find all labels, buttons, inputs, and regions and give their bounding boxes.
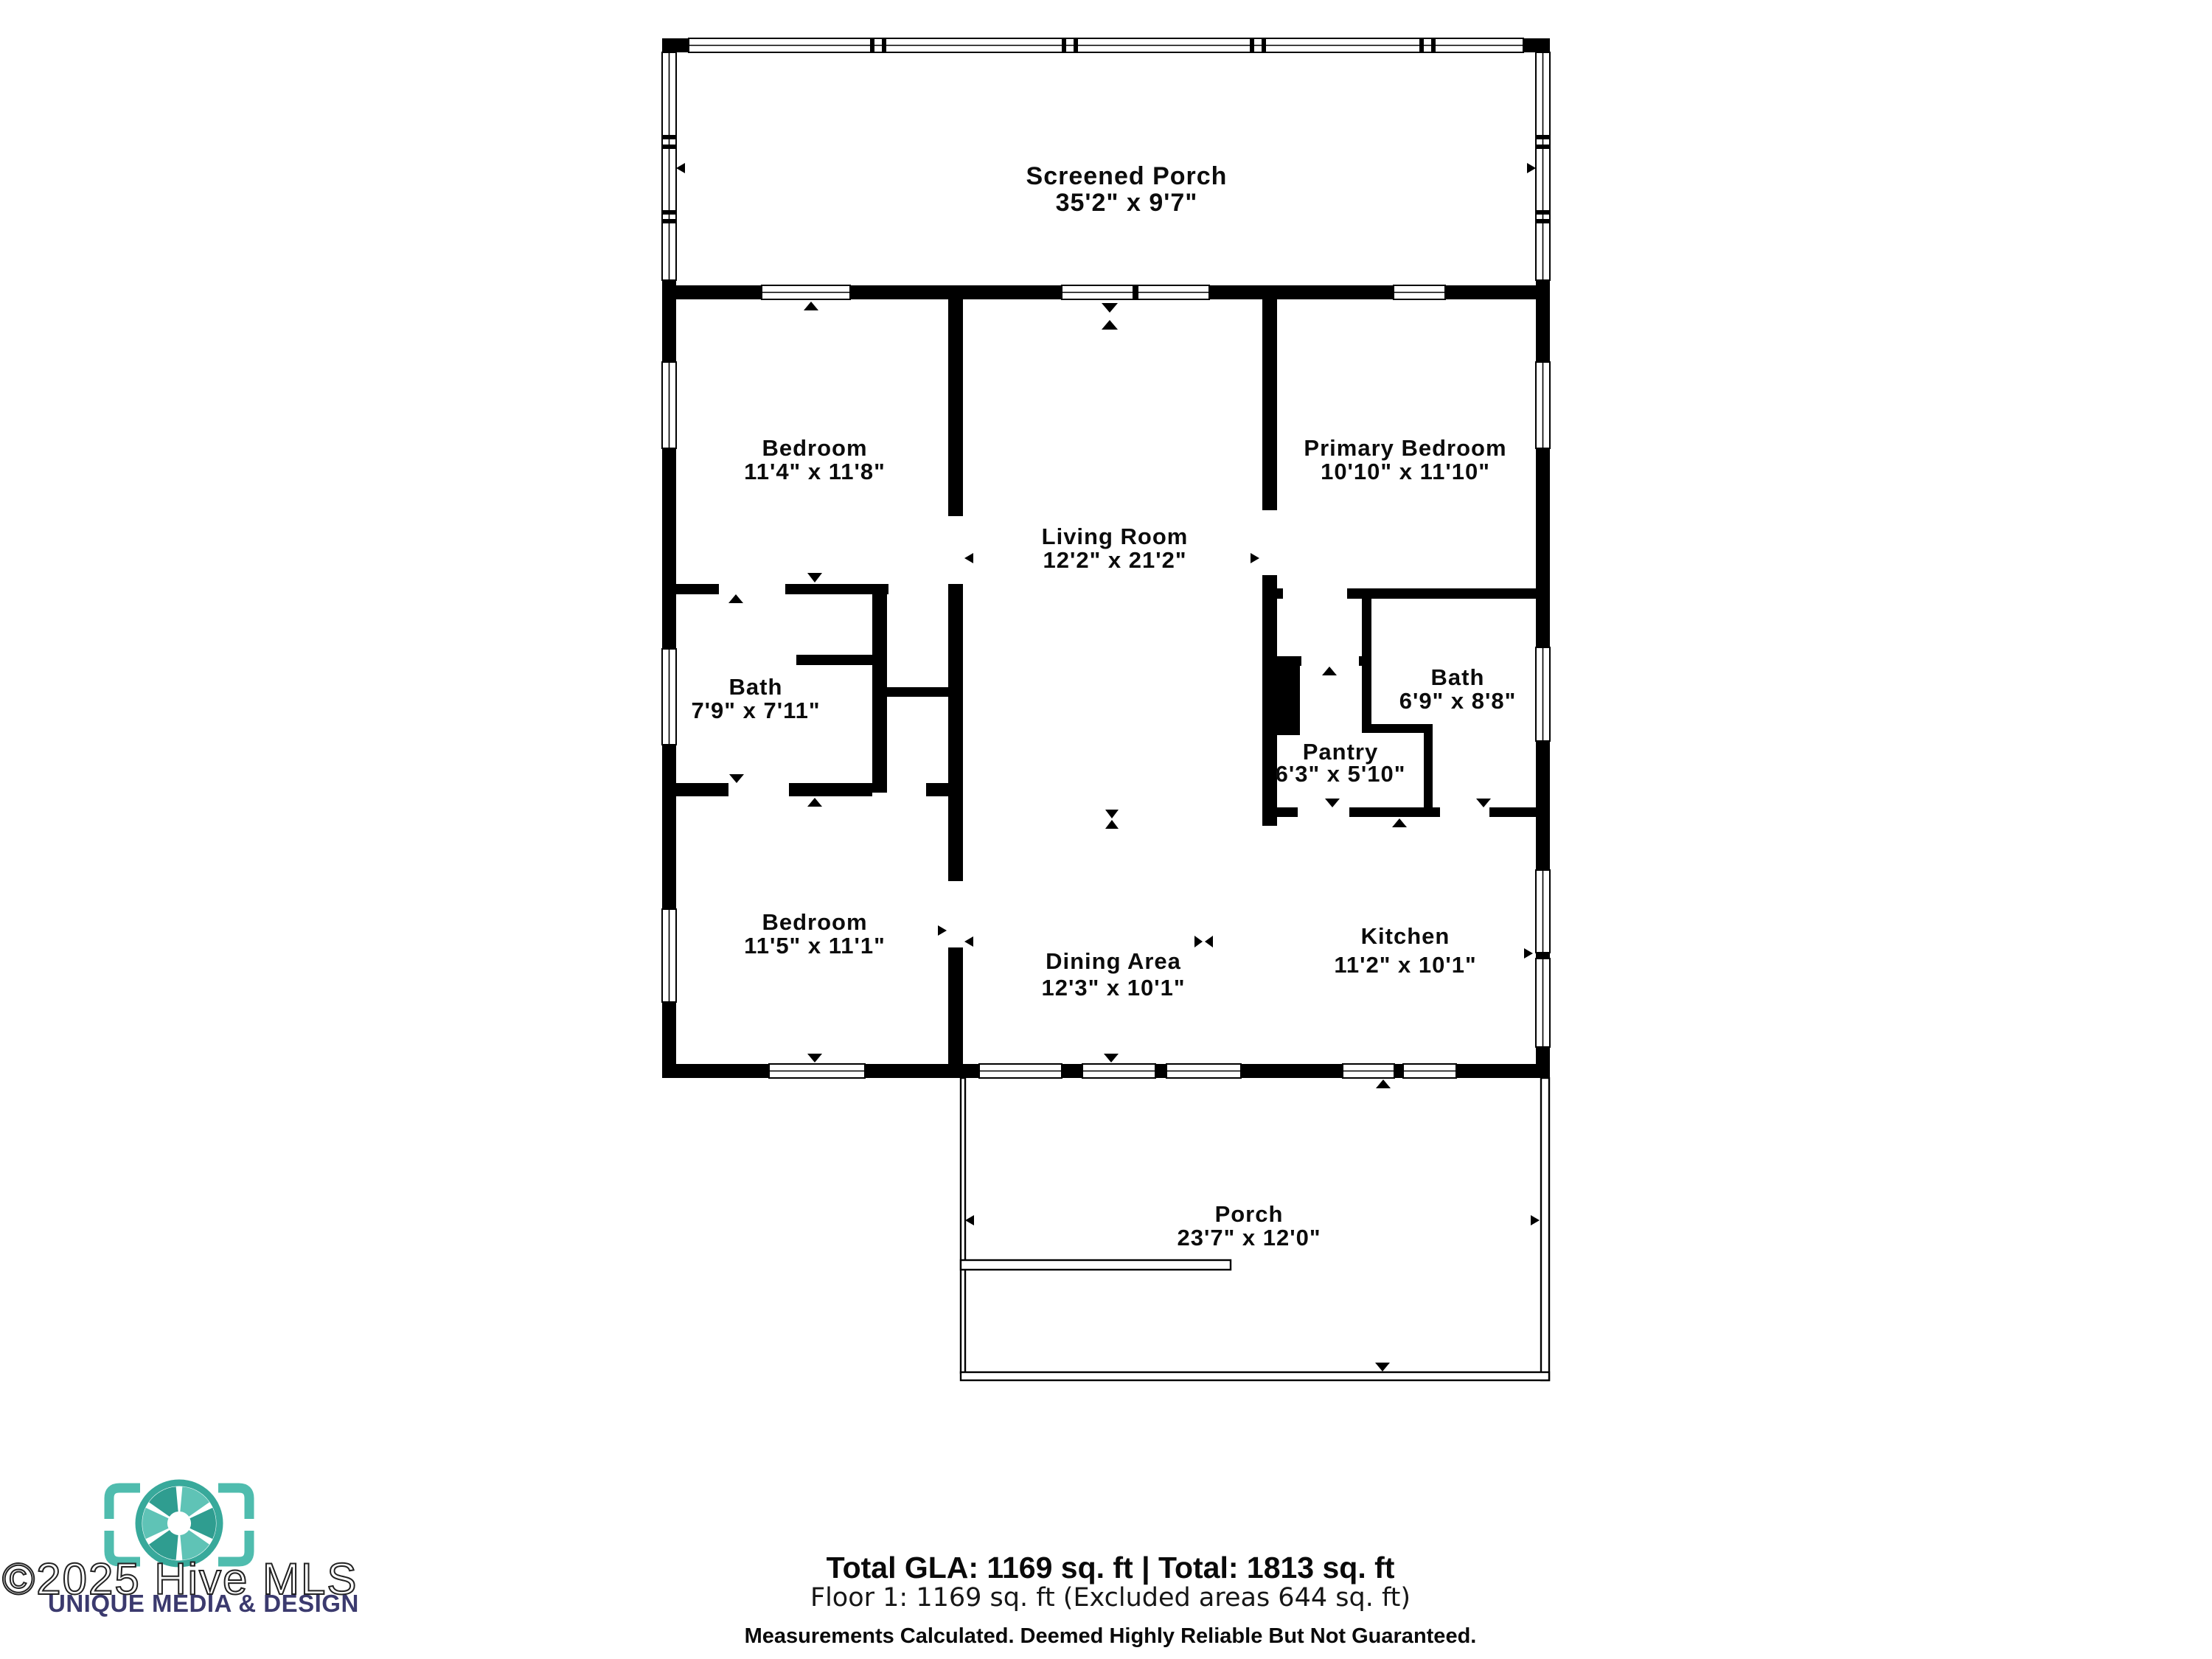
room-dims: 11'5" x 11'1"	[744, 933, 886, 959]
door-marker-icon	[807, 798, 822, 807]
footer-total: Total GLA: 1169 sq. ft | Total: 1813 sq.…	[827, 1551, 1395, 1585]
porch-marker-icon	[965, 1215, 974, 1225]
window-marker-icon	[676, 163, 685, 173]
room-label: Bath	[729, 674, 783, 700]
opening-marker-icon	[1194, 936, 1203, 947]
door-marker-icon	[1325, 799, 1340, 807]
room-dims: 11'4" x 11'8"	[744, 459, 886, 484]
window-marker-icon	[1527, 163, 1536, 173]
door-marker-icon	[1251, 553, 1259, 563]
room-label: Screened Porch	[1026, 162, 1228, 190]
room-dims: 6'3" x 5'10"	[1276, 761, 1406, 787]
porch-marker-icon	[1375, 1363, 1390, 1371]
opening-marker-icon	[1105, 810, 1119, 818]
room-dims: 23'7" x 12'0"	[1177, 1225, 1321, 1251]
room-label: Porch	[1215, 1201, 1284, 1227]
room-label: Living Room	[1042, 524, 1189, 549]
footer-floor: Floor 1: 1169 sq. ft (Excluded areas 644…	[810, 1583, 1411, 1613]
door-marker-icon	[1104, 1054, 1119, 1062]
aperture-logo-icon	[109, 1483, 249, 1564]
room-dims: 12'3" x 10'1"	[1041, 975, 1185, 1001]
footer: Total GLA: 1169 sq. ft | Total: 1813 sq.…	[745, 1551, 1477, 1648]
room-label: Primary Bedroom	[1304, 435, 1506, 461]
room-labels: Screened Porch 35'2" x 9'7" Bedroom 11'4…	[691, 162, 1516, 1251]
opening-marker-icon	[1105, 820, 1119, 829]
door-marker-icon	[1392, 818, 1407, 827]
door-marker-icon	[807, 1054, 822, 1062]
door-marker-icon	[1476, 799, 1491, 807]
door-marker-icon	[728, 594, 743, 603]
footer-disclaimer: Measurements Calculated. Deemed Highly R…	[745, 1624, 1477, 1648]
door-window-markers	[676, 163, 1540, 1371]
room-dims: 12'2" x 21'2"	[1043, 547, 1186, 573]
door-marker-icon	[964, 553, 973, 563]
opening-marker-icon	[1205, 936, 1213, 947]
door-marker-icon	[964, 936, 973, 947]
room-label: Dining Area	[1046, 948, 1181, 974]
room-label: Bedroom	[762, 909, 867, 935]
room-dims: 6'9" x 8'8"	[1399, 688, 1517, 714]
room-label: Kitchen	[1361, 923, 1450, 949]
brand-name: UNIQUE MEDIA & DESIGN	[48, 1590, 359, 1617]
door-marker-icon	[938, 925, 947, 936]
floor-plan-svg: Screened Porch 35'2" x 9'7" Bedroom 11'4…	[0, 0, 2212, 1659]
room-label: Bath	[1431, 664, 1485, 690]
room-dims: 7'9" x 7'11"	[691, 698, 820, 723]
room-dims: 11'2" x 10'1"	[1334, 952, 1476, 978]
floor-plan-page: Screened Porch 35'2" x 9'7" Bedroom 11'4…	[0, 0, 2212, 1659]
window-marker-icon	[804, 302, 818, 310]
door-marker-icon	[1102, 303, 1118, 313]
window-marker-icon	[1524, 948, 1533, 959]
room-dims: 10'10" x 11'10"	[1321, 459, 1490, 484]
porch-marker-icon	[1531, 1215, 1540, 1225]
door-marker-icon	[1376, 1079, 1391, 1088]
room-label: Bedroom	[762, 435, 867, 461]
door-marker-icon	[807, 573, 822, 582]
door-marker-icon	[729, 774, 744, 783]
room-dims: 35'2" x 9'7"	[1056, 189, 1198, 217]
door-marker-icon	[1322, 667, 1337, 675]
door-marker-icon	[1102, 320, 1118, 330]
